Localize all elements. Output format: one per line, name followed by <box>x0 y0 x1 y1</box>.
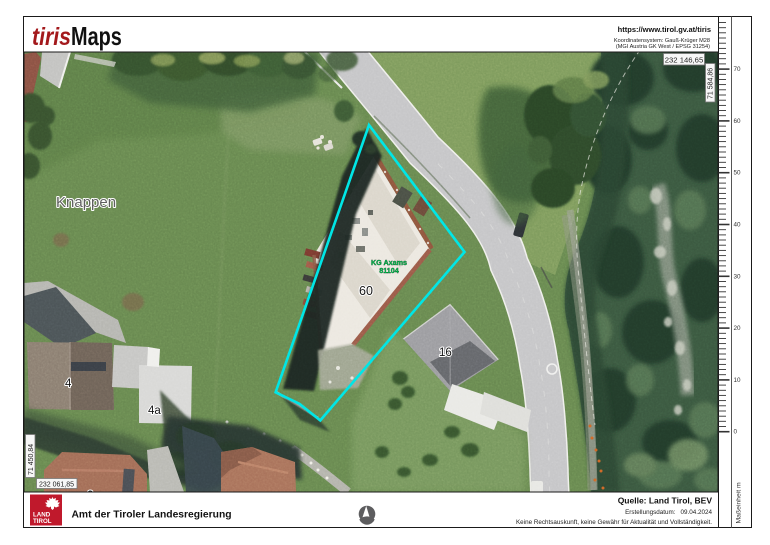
svg-text:232 061,85: 232 061,85 <box>39 482 74 489</box>
svg-text:71 450,84: 71 450,84 <box>28 444 35 475</box>
svg-text:Keine Rechtsauskunft, keine Ge: Keine Rechtsauskunft, keine Gewähr für A… <box>516 519 712 526</box>
svg-text:30: 30 <box>734 273 742 280</box>
svg-text:Maßeinheit m: Maßeinheit m <box>736 482 743 524</box>
svg-text:70: 70 <box>734 66 742 73</box>
svg-text:71 584,86: 71 584,86 <box>708 68 715 99</box>
svg-text:https://www.tirol.gv.at/tiris: https://www.tirol.gv.at/tiris <box>618 25 711 34</box>
svg-text:0: 0 <box>734 429 738 436</box>
svg-text:Amt der Tiroler Landesregierun: Amt der Tiroler Landesregierung <box>72 510 232 521</box>
svg-text:40: 40 <box>734 222 742 229</box>
svg-text:(MGI Austria GK West / EPSG: (MGI Austria GK West / EPSG 31254) <box>616 44 710 50</box>
svg-text:TIROL: TIROL <box>33 518 52 525</box>
svg-text:60: 60 <box>734 118 742 125</box>
svg-text:tiris: tiris <box>32 22 71 50</box>
svg-text:50: 50 <box>734 170 742 177</box>
svg-text:232 146,65: 232 146,65 <box>665 55 703 64</box>
svg-text:Quelle: Land Tirol, BEV: Quelle: Land Tirol, BEV <box>618 496 713 506</box>
svg-text:Maps: Maps <box>71 22 122 51</box>
svg-text:20: 20 <box>734 325 742 332</box>
svg-text:Erstellungsdatum:09.04.2024: Erstellungsdatum:09.04.2024 <box>625 509 712 516</box>
svg-text:10: 10 <box>734 377 742 384</box>
